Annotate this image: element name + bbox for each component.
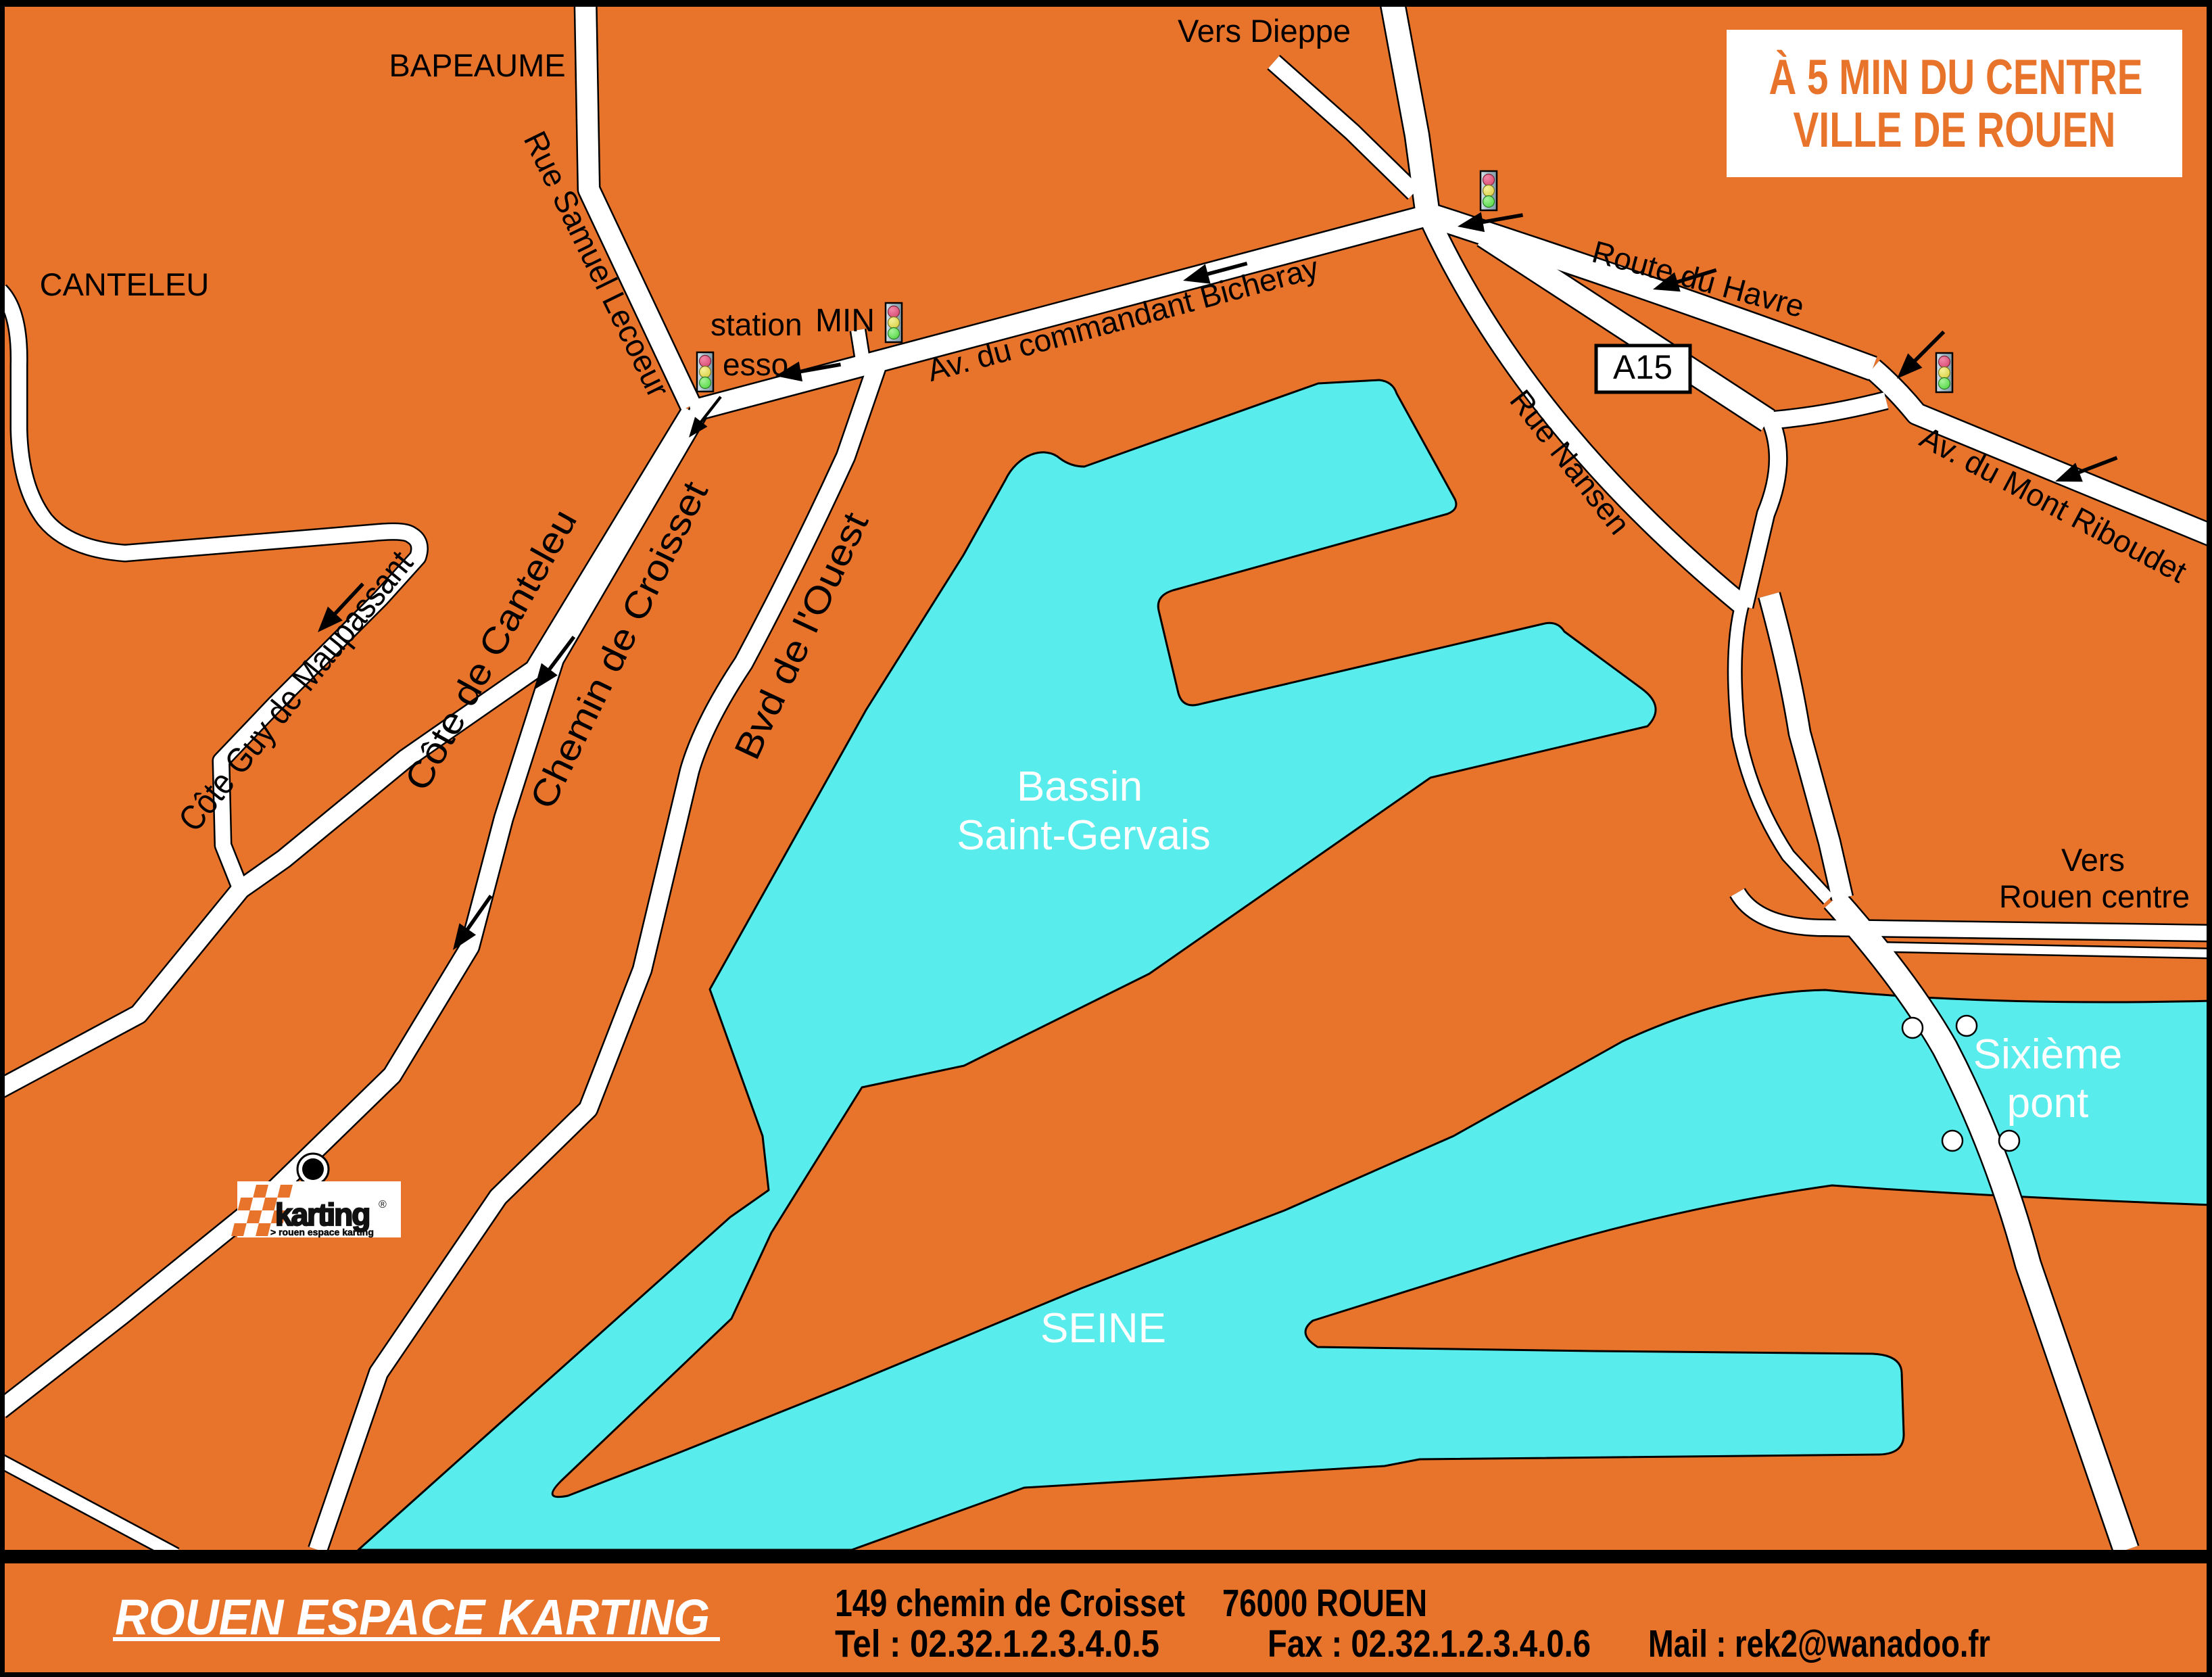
svg-text:ROUEN ESPACE KARTING: ROUEN ESPACE KARTING — [115, 1589, 710, 1645]
svg-text:Rouen centre: Rouen centre — [1999, 878, 2190, 914]
svg-text:esso: esso — [723, 347, 788, 382]
svg-text:VILLE DE ROUEN: VILLE DE ROUEN — [1794, 103, 2116, 158]
svg-text:BAPEAUME: BAPEAUME — [389, 47, 565, 83]
svg-text:Tel : 02.32.1.2.3.4.0.5: Tel : 02.32.1.2.3.4.0.5 — [835, 1622, 1159, 1666]
svg-text:Bassin: Bassin — [1017, 763, 1143, 810]
svg-text:MIN: MIN — [815, 303, 875, 339]
svg-text:®: ® — [379, 1199, 387, 1210]
svg-text:Mail : rek2@wanadoo.fr: Mail : rek2@wanadoo.fr — [1648, 1622, 1990, 1666]
svg-text:A15: A15 — [1613, 348, 1673, 386]
svg-text:À 5 MIN DU CENTRE: À 5 MIN DU CENTRE — [1769, 50, 2143, 105]
svg-text:station: station — [711, 307, 802, 342]
svg-text:149 chemin de Croisset: 149 chemin de Croisset — [835, 1582, 1185, 1625]
svg-text:Vers Dieppe: Vers Dieppe — [1178, 13, 1351, 49]
svg-text:SEINE: SEINE — [1040, 1305, 1166, 1352]
svg-text:CANTELEU: CANTELEU — [40, 266, 210, 302]
svg-text:Sixième: Sixième — [1973, 1031, 2123, 1078]
svg-text:pont: pont — [2007, 1080, 2089, 1127]
svg-text:Vers: Vers — [2061, 842, 2125, 878]
svg-text:Saint-Gervais: Saint-Gervais — [957, 812, 1211, 859]
svg-text:76000 ROUEN: 76000 ROUEN — [1222, 1582, 1427, 1625]
svg-text:> rouen espace karting: > rouen espace karting — [270, 1227, 374, 1237]
svg-text:Fax : 02.32.1.2.3.4.0.6: Fax : 02.32.1.2.3.4.0.6 — [1268, 1622, 1591, 1666]
